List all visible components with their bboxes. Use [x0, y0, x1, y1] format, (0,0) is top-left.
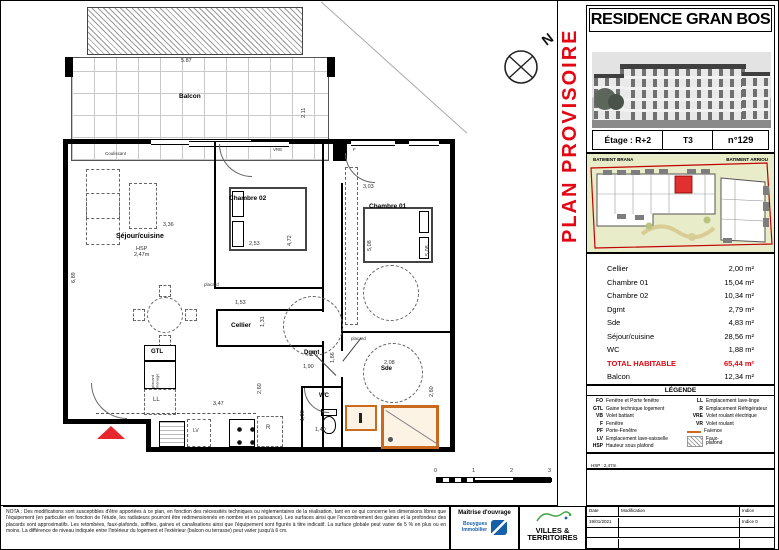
window-right [409, 140, 439, 146]
faux-plafond-swatch [687, 436, 703, 447]
total-row: TOTAL HABITABLE65,44 m² [587, 357, 774, 371]
moa-name: Bouygues Immobilier [462, 522, 487, 533]
north-compass: N [499, 29, 563, 93]
balcon-row: Balcon12,34 m² [587, 370, 774, 384]
dim: 1,66 [330, 345, 336, 363]
rev-cell [619, 539, 740, 548]
dim: 1,38 [300, 403, 306, 421]
rev-cell [587, 528, 619, 538]
area-row: WC1,88 m² [587, 343, 774, 357]
scale-bar [436, 477, 551, 483]
cooktop [229, 419, 255, 447]
rev-cell: 19/01/2021 [587, 518, 619, 528]
title-block: RESIDENCE GRAN BOS BRANA Rue Doux Bos & … [586, 5, 775, 153]
room-chambre02: Chambre 02 [229, 195, 266, 202]
dim: 6,89 [71, 263, 77, 283]
scale-tick: 3 [548, 468, 551, 474]
floor-cell: Étage : R+2 [592, 130, 664, 150]
coulissant-label: Coulissant [105, 151, 126, 156]
dim: 3,36 [163, 222, 174, 228]
vt-line2: TERRITOIRES [520, 534, 585, 542]
ll-box [144, 389, 176, 415]
plan-sheet: 5.87 Balcon 2.11 Coulissant VRE F [0, 0, 779, 550]
gtl-label: GTL [151, 349, 163, 355]
kitchen-sink [159, 421, 185, 447]
batiment-brana-label: BATIMENT BRANA [593, 157, 633, 162]
room-wc: WC [319, 393, 329, 399]
type-cell: T3 [662, 130, 714, 150]
empty-box [586, 469, 775, 506]
building-photo [592, 52, 771, 128]
area-row: Sde4,83 m² [587, 316, 774, 330]
rev-cell [740, 539, 774, 548]
sideboard [129, 183, 157, 229]
dishwasher [187, 419, 211, 447]
wall-bottom-entry [63, 419, 151, 424]
dim: 1,31 [260, 309, 266, 327]
wall-left [63, 139, 68, 424]
dim: 3,03 [363, 184, 374, 190]
dim: 1,53 [235, 300, 246, 306]
dim-balcony-depth: 2.11 [301, 96, 307, 118]
dim: 4,72 [287, 226, 293, 246]
areas-table: Cellier2,00 m² Chambre 0115,04 m² Chambr… [586, 253, 775, 385]
moa-box: Maîtrise d'ouvrage Bouygues Immobilier [450, 506, 519, 549]
project-title: RESIDENCE GRAN BOS [591, 11, 771, 29]
hatched-structure [87, 7, 303, 55]
hsp-note-box: HSP : 2,47m [586, 453, 775, 469]
fridge-label: R [266, 425, 270, 431]
area-row: Dgmt2,79 m² [587, 303, 774, 317]
ll-label: LL [153, 397, 160, 403]
f-label: F [353, 147, 356, 152]
placard-label-b: placard [351, 336, 366, 341]
toilet-tank [321, 409, 337, 416]
scale-tick: 1 [472, 468, 475, 474]
scale-tick: 0 [434, 468, 437, 474]
unit-highlight [675, 176, 692, 193]
lot-cell: n°129 [712, 130, 769, 150]
rev-cell [619, 528, 740, 538]
rev-cell [587, 539, 619, 548]
room-cellier: Cellier [231, 322, 251, 329]
floor-plan: 5.87 Balcon 2.11 Coulissant VRE F [1, 1, 558, 504]
kitchen-counter [96, 413, 256, 414]
faience-swatch [687, 431, 701, 433]
dim: 5,08 [425, 236, 431, 256]
legend-right-column: LLEmplacement lave-linge REmplacement Ré… [685, 398, 772, 451]
dim: 2,53 [249, 241, 260, 247]
placard-menage-label: placard ménage [151, 363, 160, 388]
rev-header: Modification [619, 507, 740, 517]
nota-box: NOTA : Des modifications sont susceptibl… [3, 506, 450, 549]
wall-right [450, 139, 455, 452]
dining-table [147, 297, 183, 333]
area-row: Chambre 0210,34 m² [587, 289, 774, 303]
plan-provisoire-watermark: PLAN PROVISOIRE [559, 13, 585, 243]
dim-balcony-width: 5.87 [181, 58, 192, 64]
placard-label-a: placard [204, 282, 219, 287]
lv-label: LV [193, 428, 199, 434]
placard-chambre01 [345, 167, 358, 325]
villes-territoires-logo-icon [533, 509, 573, 522]
legend: LÉGENDE FOFenêtre et Porte fenêtre GTLGa… [586, 385, 775, 453]
legend-left-column: FOFenêtre et Porte fenêtre GTLGaine tech… [589, 398, 685, 451]
room-dgmt: Dgmt [304, 350, 319, 356]
dim: 3,47 [213, 401, 224, 407]
door-sde [342, 337, 361, 361]
shower [381, 405, 439, 449]
north-label: N [538, 30, 556, 49]
room-chambre01: Chambre 01 [369, 203, 406, 210]
dim: 5,08 [367, 231, 373, 251]
roof-edge-line [321, 2, 467, 134]
area-row: Séjour/cuisine28,56 m² [587, 330, 774, 344]
room-sejour: Séjour/cuisine [116, 233, 164, 240]
dim: 2,60 [429, 379, 435, 397]
rev-header: Date [587, 507, 619, 517]
dim: 1,40 [315, 427, 326, 433]
site-plan: BATIMENT BRANA BATIMENT ARRIOU [586, 153, 775, 253]
rev-header: Indice [740, 507, 774, 517]
moa-title: Maîtrise d'ouvrage [451, 510, 518, 516]
window-chambre02 [351, 140, 395, 146]
hsp-label: HSP 2,47m [134, 246, 149, 258]
scale-tick: 2 [510, 468, 513, 474]
dim: 2,08 [384, 360, 395, 366]
placard-menage-box [144, 361, 176, 389]
batiment-arriou-label: BATIMENT ARRIOU [726, 157, 768, 162]
rev-cell [740, 528, 774, 538]
revisions-table: Date Modification Indice 19/01/2021 Indi… [586, 506, 775, 549]
balcony-label: Balcon [179, 93, 201, 100]
door-chambre02 [219, 144, 252, 177]
entrance-arrow [97, 426, 125, 439]
dim: 2,60 [257, 376, 263, 394]
nota-text: NOTA : Des modifications sont susceptibl… [3, 507, 449, 536]
rev-cell: Indice 0 [740, 518, 774, 528]
dim: 1,90 [303, 364, 314, 370]
room-sde: Sde [381, 366, 392, 372]
legend-title: LÉGENDE [587, 386, 774, 396]
area-row: Cellier2,00 m² [587, 262, 774, 276]
fridge-space [257, 416, 283, 447]
area-row: Chambre 0115,04 m² [587, 276, 774, 290]
vre-label: VRE [273, 147, 282, 152]
bouygues-logo-icon [491, 520, 507, 535]
vt-box: VILLES & TERRITOIRES [519, 506, 586, 549]
project-title-box: RESIDENCE GRAN BOS [589, 8, 772, 32]
rev-cell [619, 518, 740, 528]
